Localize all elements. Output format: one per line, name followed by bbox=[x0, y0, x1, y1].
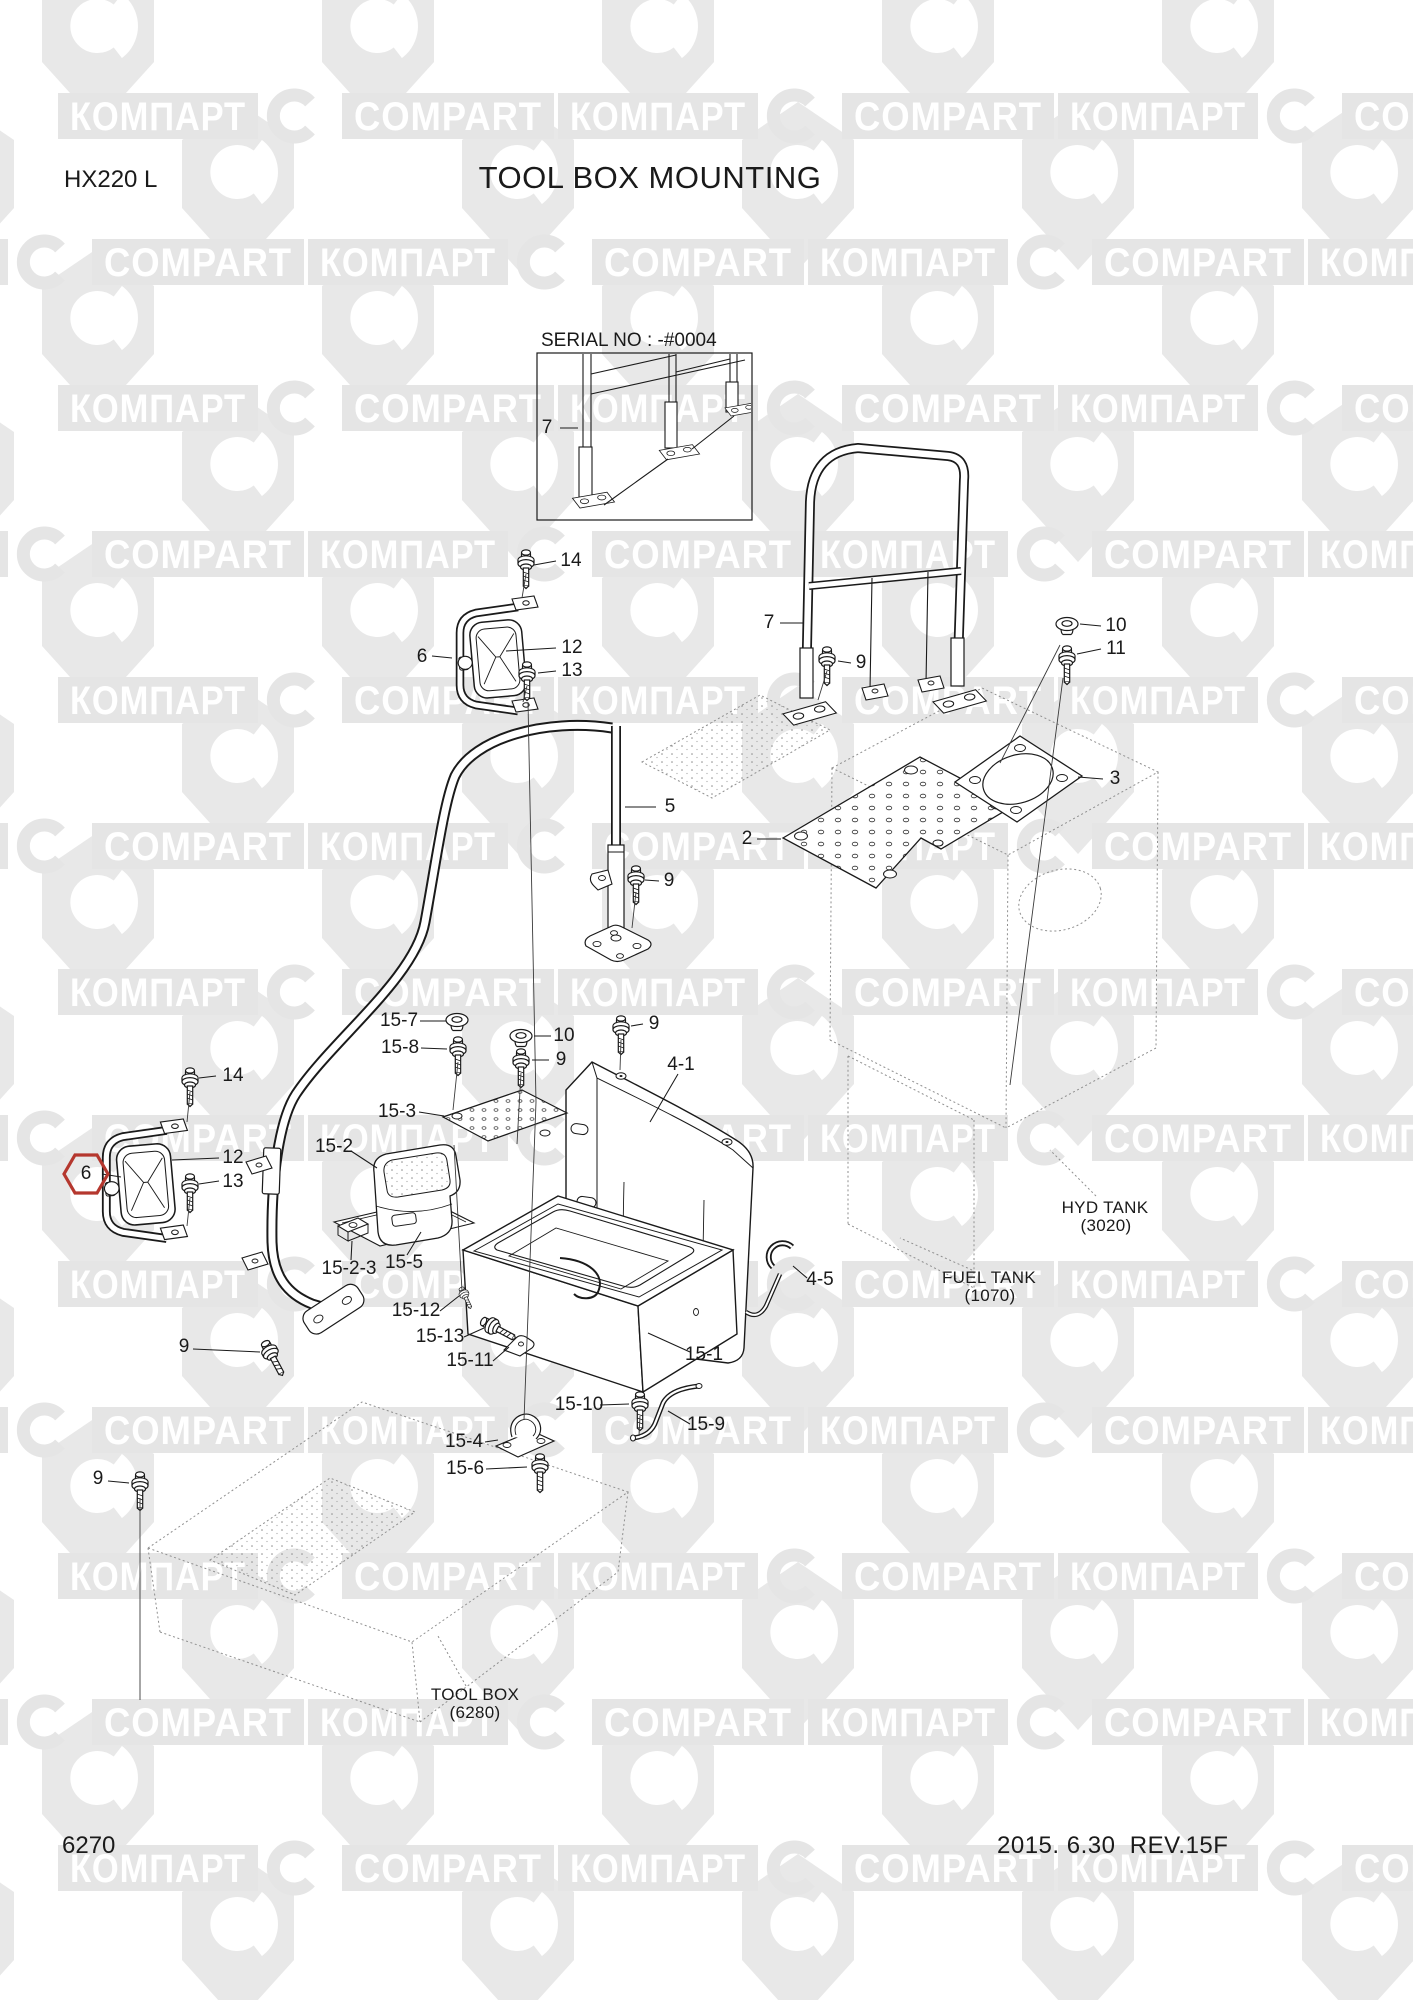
serial-no-box bbox=[537, 353, 760, 520]
callout-9-rail: 9 bbox=[856, 652, 867, 674]
plug-10-b bbox=[510, 1030, 532, 1047]
callout-15-1: 15-1 bbox=[685, 1344, 723, 1366]
bolt-14-top bbox=[518, 550, 534, 589]
callout-5: 5 bbox=[665, 796, 676, 818]
callout-14-bottom: 14 bbox=[222, 1065, 243, 1087]
small-walk-plate-15-3 bbox=[443, 1090, 567, 1141]
callout-9-step: 9 bbox=[664, 870, 675, 892]
callout-9-c: 9 bbox=[649, 1013, 660, 1035]
ref-tool-box-line1: TOOL BOX bbox=[431, 1685, 519, 1705]
callout-12-top: 12 bbox=[561, 637, 582, 659]
bolt-14-bottom bbox=[182, 1068, 198, 1107]
bolt-15-8 bbox=[450, 1037, 466, 1076]
bolt-13-bottom bbox=[182, 1174, 198, 1213]
mirror-assembly-bottom bbox=[101, 1119, 187, 1240]
callout-10-b: 10 bbox=[553, 1025, 574, 1047]
callout-6-bottom: 6 bbox=[81, 1163, 92, 1185]
ref-fuel-tank-line2: (1070) bbox=[965, 1286, 1016, 1306]
callout-13-bottom: 13 bbox=[222, 1171, 243, 1193]
callout-15-7: 15-7 bbox=[380, 1010, 418, 1032]
callout-7-serial: 7 bbox=[542, 417, 553, 439]
callout-7-rail: 7 bbox=[764, 612, 775, 634]
bolt-9-step bbox=[628, 866, 644, 905]
callout-15-2-3: 15-2-3 bbox=[322, 1258, 377, 1280]
callout-15-6: 15-6 bbox=[446, 1458, 484, 1480]
callout-10: 10 bbox=[1105, 615, 1126, 637]
bolt-11 bbox=[1059, 646, 1075, 685]
ref-hyd-tank-line2: (3020) bbox=[1081, 1216, 1132, 1236]
diagram-art bbox=[0, 0, 1413, 2000]
bolt-15-6 bbox=[532, 1454, 548, 1493]
callout-15-13: 15-13 bbox=[416, 1326, 465, 1348]
callout-14-top: 14 bbox=[560, 550, 581, 572]
clamp-bracket-15-4 bbox=[496, 1414, 554, 1457]
callout-15-5: 15-5 bbox=[385, 1252, 423, 1274]
plug-10 bbox=[1056, 618, 1078, 635]
bolt-9-rail bbox=[819, 647, 835, 686]
callout-15-9: 15-9 bbox=[687, 1414, 725, 1436]
catalog-page: КОМПАРТ COMPART bbox=[0, 0, 1413, 2000]
bolt-9-d bbox=[257, 1338, 289, 1380]
callout-3: 3 bbox=[1110, 768, 1121, 790]
callout-4-5: 4-5 bbox=[806, 1269, 833, 1291]
callout-9-d: 9 bbox=[179, 1336, 190, 1358]
callout-15-11: 15-11 bbox=[446, 1350, 493, 1372]
callout-15-4: 15-4 bbox=[445, 1431, 483, 1453]
callout-15-3: 15-3 bbox=[378, 1101, 416, 1123]
ref-fuel-tank-line1: FUEL TANK bbox=[942, 1268, 1036, 1288]
model-code: HX220 L bbox=[64, 166, 157, 194]
callout-15-8: 15-8 bbox=[381, 1037, 419, 1059]
ref-hyd-tank-line1: HYD TANK bbox=[1062, 1198, 1149, 1218]
revision-date: 2015. 6.30 REV.15F bbox=[997, 1832, 1228, 1860]
callout-15-10: 15-10 bbox=[555, 1394, 604, 1416]
bolt-9-b bbox=[513, 1049, 529, 1088]
callout-11: 11 bbox=[1106, 638, 1126, 660]
callout-12-bottom: 12 bbox=[222, 1147, 243, 1169]
ref-tool-box-line2: (6280) bbox=[450, 1703, 501, 1723]
callout-9-b: 9 bbox=[556, 1049, 567, 1071]
rear-handrail bbox=[782, 448, 987, 726]
plug-15-7 bbox=[446, 1014, 468, 1031]
callout-13-top: 13 bbox=[561, 660, 582, 682]
latch-cover-assembly bbox=[334, 1145, 474, 1246]
handrail-foot-flange bbox=[300, 1281, 368, 1338]
serial-no-label: SERIAL NO : -#0004 bbox=[541, 330, 717, 352]
page-title: TOOL BOX MOUNTING bbox=[479, 160, 822, 196]
callout-6-top: 6 bbox=[417, 646, 428, 668]
callout-9-e: 9 bbox=[93, 1468, 104, 1490]
callout-4-1: 4-1 bbox=[667, 1054, 694, 1076]
callout-15-2: 15-2 bbox=[315, 1136, 353, 1158]
callout-15-12: 15-12 bbox=[392, 1300, 441, 1322]
tool-box-dashed-outline bbox=[148, 1402, 628, 1722]
callout-2: 2 bbox=[742, 828, 753, 850]
page-number: 6270 bbox=[62, 1832, 115, 1860]
